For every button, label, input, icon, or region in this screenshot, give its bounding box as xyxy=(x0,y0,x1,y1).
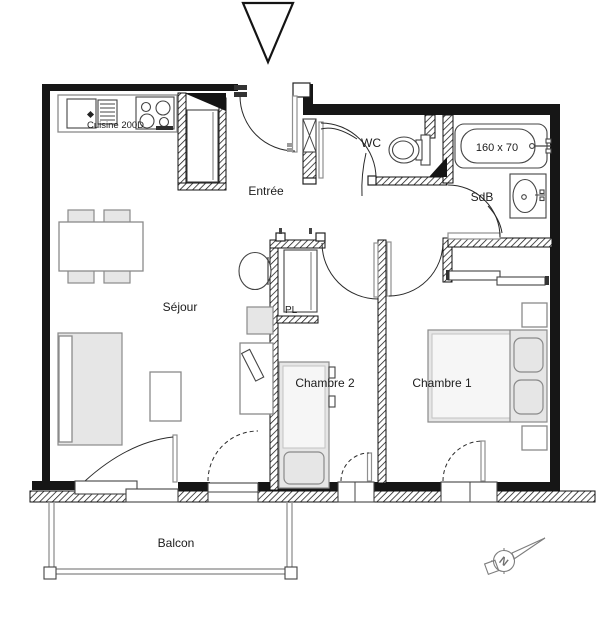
entrance-left-jamb xyxy=(234,85,247,90)
wc-leader-line xyxy=(321,128,357,139)
entrance-direction-icon xyxy=(243,3,293,62)
washbasin-icon xyxy=(510,174,546,218)
wardrobe-bedroom1 xyxy=(446,270,549,285)
bedroom1-window xyxy=(441,441,497,502)
nightstand-bottom xyxy=(522,426,547,450)
technical-shaft xyxy=(303,119,316,152)
desk xyxy=(240,343,273,414)
tv-cabinet xyxy=(247,307,273,334)
bedroom-2: Chambre 2 xyxy=(279,362,355,488)
bedside-shelf-2 xyxy=(329,396,335,407)
bedroom2-label: Chambre 2 xyxy=(295,376,355,390)
balcony-label: Balcon xyxy=(158,536,195,550)
bathroom: 160 x 70 SdB xyxy=(455,124,551,233)
entrance-door xyxy=(240,96,297,152)
closet-pl: PL xyxy=(284,250,317,316)
living-room: Séjour xyxy=(58,210,273,445)
bathtub-size-label: 160 x 70 xyxy=(476,142,518,154)
floorplan-canvas: Balcon Cuisine 200D Entr xyxy=(0,0,600,632)
round-chair xyxy=(239,253,271,290)
north-arrow-icon: N xyxy=(485,538,545,574)
living-label: Séjour xyxy=(163,300,198,314)
bedroom-1: Chambre 1 xyxy=(412,270,549,450)
compass-north-label: N xyxy=(497,555,511,569)
kitchen: Cuisine 200D xyxy=(58,95,177,132)
entry-label: Entrée xyxy=(248,184,284,198)
bedroom2-door xyxy=(322,243,378,299)
dining-table xyxy=(59,222,143,271)
balcony: Balcon xyxy=(44,502,297,579)
entry-closet xyxy=(187,110,218,182)
wc-leader-line-2 xyxy=(362,153,366,196)
wc-door xyxy=(319,122,376,178)
floorplan-svg: Balcon Cuisine 200D Entr xyxy=(0,0,600,632)
bathtub-icon: 160 x 70 xyxy=(455,124,551,168)
kitchen-label: Cuisine 200D xyxy=(87,120,144,131)
coffee-table xyxy=(150,372,181,421)
closet-label: PL xyxy=(285,305,298,316)
bedroom2-window xyxy=(338,453,374,502)
wc-label: WC xyxy=(361,136,381,150)
nightstand-top xyxy=(522,303,547,327)
wc-room: WC xyxy=(321,128,430,196)
bedroom1-label: Chambre 1 xyxy=(412,376,472,390)
sofa xyxy=(58,333,122,445)
bathroom-label: SdB xyxy=(471,190,494,204)
bedroom1-door xyxy=(387,242,443,296)
living-window xyxy=(208,431,258,502)
entrance-right-jamb xyxy=(293,83,310,97)
toilet-icon xyxy=(389,135,430,165)
